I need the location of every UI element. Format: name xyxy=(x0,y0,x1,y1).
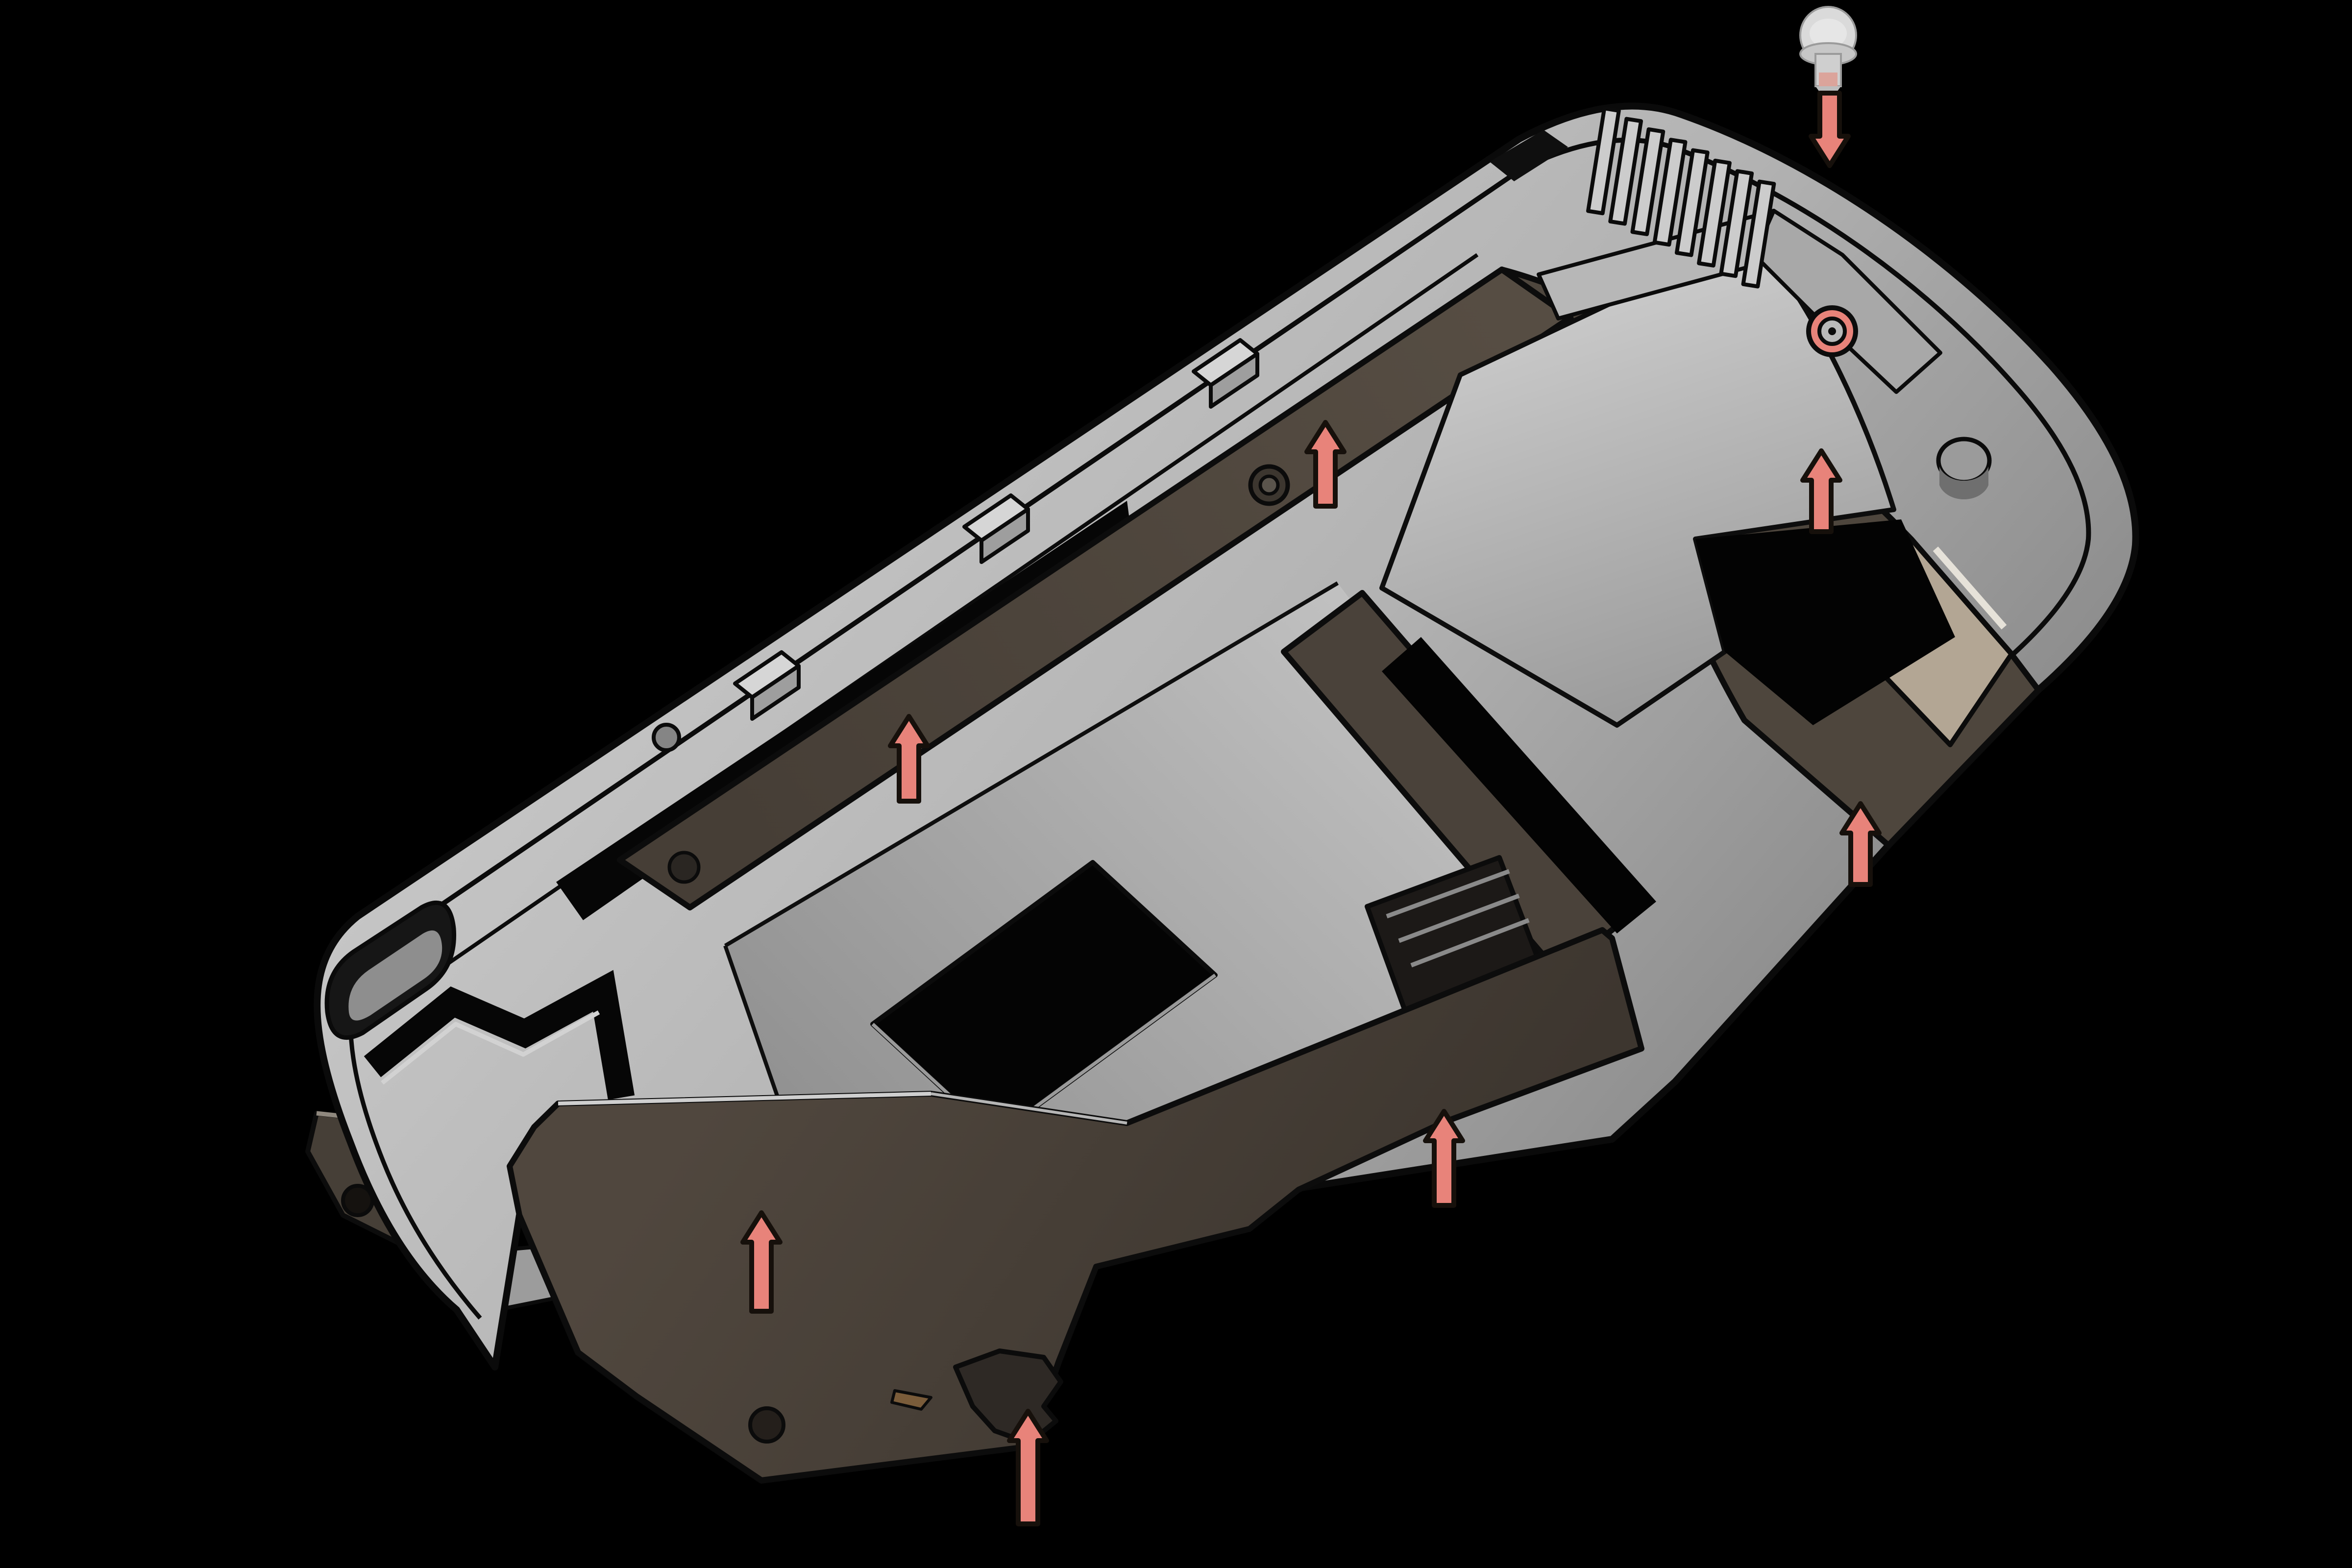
frame-hole xyxy=(669,853,699,882)
disassembly-diagram xyxy=(0,0,2352,1568)
frame-grommet xyxy=(1250,466,1288,504)
rim-hole xyxy=(654,725,679,750)
illustration-stage xyxy=(0,0,2352,1568)
screw-hole-highlight xyxy=(1809,308,1856,355)
cover-hole xyxy=(750,1408,784,1442)
strap-post-hole xyxy=(1938,439,1989,499)
